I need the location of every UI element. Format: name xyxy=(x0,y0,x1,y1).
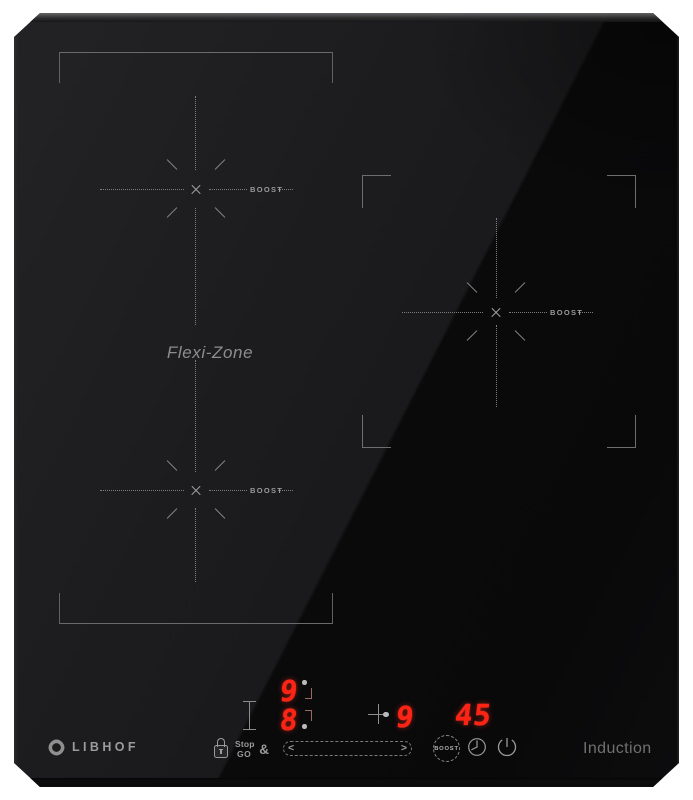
boost-button[interactable]: BOOST xyxy=(433,735,460,762)
flexi-zone-axis-line xyxy=(195,508,196,582)
zone-center-cross-icon xyxy=(490,306,502,318)
zone-tick xyxy=(215,508,226,519)
power-icon xyxy=(499,739,516,756)
zone-guide-line xyxy=(496,325,497,407)
flexi-zone-bottom-bracket xyxy=(59,593,333,624)
flexi-zone-axis-line xyxy=(195,96,196,170)
glass-top-bevel xyxy=(14,13,679,22)
zone-tick xyxy=(167,508,178,519)
zone-tick xyxy=(467,282,478,293)
rear-left-power-display: 9 xyxy=(278,677,299,706)
power-level-slider[interactable]: < > xyxy=(283,741,412,756)
induction-hob-glass: Flexi-Zone BOOST BOOST xyxy=(14,13,679,787)
right-zone-bracket-br xyxy=(607,415,636,448)
flexi-zone-label: Flexi-Zone xyxy=(120,343,300,363)
right-zone-bracket-bl xyxy=(362,415,391,448)
zone-guide-line xyxy=(209,490,247,491)
zone-tick xyxy=(167,159,178,170)
zone-guide-line xyxy=(100,490,184,491)
stop-and-go-button[interactable]: Stop GO & xyxy=(235,737,267,763)
zone-tick xyxy=(215,159,226,170)
induction-type-label: Induction xyxy=(583,740,652,758)
timer-display: 45 xyxy=(453,701,493,730)
front-zone-indicator-icon xyxy=(301,708,315,730)
brand-logo: LIBHOF xyxy=(46,737,67,758)
timer-clock-button[interactable] xyxy=(466,736,488,758)
zone-guide-line xyxy=(578,312,593,313)
glass-rim-highlight xyxy=(14,13,679,787)
zone-tick xyxy=(515,330,526,341)
right-power-display: 9 xyxy=(394,703,415,732)
zone-guide-line xyxy=(509,312,547,313)
zone-tick xyxy=(167,207,178,218)
zone-tick xyxy=(467,330,478,341)
right-zone-bracket-tr xyxy=(607,175,636,208)
zone-guide-line xyxy=(496,218,497,298)
glass-bottom-bevel xyxy=(14,778,679,787)
stop-go-label: GO xyxy=(237,749,251,759)
stop-go-label: Stop xyxy=(235,739,255,749)
rear-zone-indicator-icon xyxy=(301,679,315,701)
right-zone-bracket-tl xyxy=(362,175,391,208)
zone-tick xyxy=(515,282,526,293)
zone-guide-line xyxy=(209,189,247,190)
zone-guide-line xyxy=(278,490,293,491)
zone-guide-line xyxy=(278,189,293,190)
flexi-zone-top-bracket xyxy=(59,52,333,83)
zone-center-cross-icon xyxy=(190,183,202,195)
slider-right-arrow-icon[interactable]: > xyxy=(401,742,407,755)
brand-name: LIBHOF xyxy=(72,740,139,754)
flexi-bridge-key[interactable] xyxy=(243,701,256,730)
stop-go-ampersand: & xyxy=(259,742,269,757)
flexi-zone-axis-line xyxy=(195,208,196,325)
zone-guide-line xyxy=(100,189,184,190)
zone-center-cross-icon xyxy=(190,484,202,496)
zone-tick xyxy=(215,460,226,471)
slider-left-arrow-icon[interactable]: < xyxy=(288,742,294,755)
power-button[interactable] xyxy=(496,736,518,758)
product-photo: Flexi-Zone BOOST BOOST xyxy=(0,0,693,800)
front-left-power-display: 8 xyxy=(278,706,299,735)
zone-guide-line xyxy=(402,312,483,313)
key-lock-button[interactable] xyxy=(214,738,229,759)
libhof-pinwheel-icon xyxy=(46,737,67,758)
zone-tick xyxy=(215,207,226,218)
flexi-zone-axis-line xyxy=(195,360,196,472)
clock-icon xyxy=(469,739,486,756)
boost-button-label: BOOST xyxy=(434,746,459,752)
zone-tick xyxy=(167,460,178,471)
